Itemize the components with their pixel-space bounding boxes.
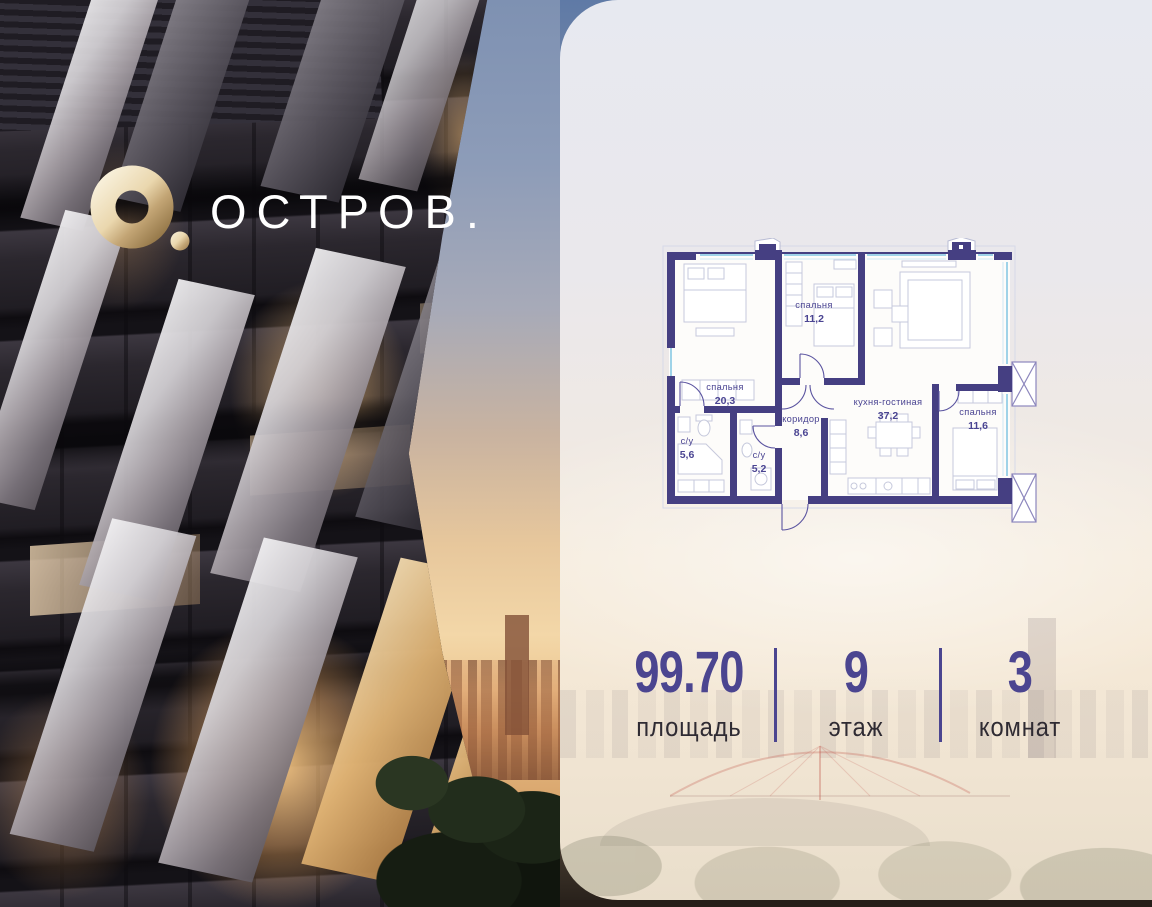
facade-protrusions [755,238,975,252]
room-name: с/у [681,436,694,446]
room-area: 11,2 [804,313,824,325]
brand-name: ОСТРОВ. [210,184,489,239]
room-name: коридор [782,414,820,424]
ostrov-o-icon [90,163,194,259]
page: { "logo": { "brand": "ОСТРОВ." }, "plan"… [0,0,1152,907]
trees-silhouette [375,730,560,907]
apartment-card[interactable]: спальня 20,3 спальня 11,2 кухня-гостиная… [560,0,1152,900]
room-area: 5,6 [680,449,695,461]
stat-rooms: 3 комнат [960,644,1080,741]
washed-trees [560,815,1152,900]
photo-bottom-strip [560,900,1152,907]
balconies [1012,362,1036,522]
room-area: 20,3 [715,395,736,407]
floor-value: 9 [809,644,903,702]
floor-plan: спальня 20,3 спальня 11,2 кухня-гостиная… [656,238,1048,543]
room-name: спальня [706,382,743,392]
room-name: спальня [795,300,832,310]
bridge-silhouette [670,738,1010,808]
rooms-value: 3 [973,644,1067,702]
rooms-label: комнат [967,714,1073,741]
room-name: кухня-гостиная [854,397,923,407]
balcony-glass [420,297,520,354]
stat-area: 99.70 площадь [599,644,779,741]
room-area: 11,6 [968,420,988,432]
area-value: 99.70 [619,644,759,702]
distant-tower [505,615,529,735]
room-name: спальня [959,407,996,417]
stats-divider [774,648,777,742]
stats-divider [939,648,942,742]
room-area: 5,2 [752,463,767,475]
room-area: 37,2 [878,410,899,422]
brand-logo: ОСТРОВ. [90,163,489,259]
room-name: с/у [753,450,766,460]
floor-label: этаж [803,714,909,741]
area-label: площадь [610,714,768,741]
stat-floor: 9 этаж [796,644,916,741]
building-photo [0,0,560,907]
room-area: 8,6 [794,427,809,439]
